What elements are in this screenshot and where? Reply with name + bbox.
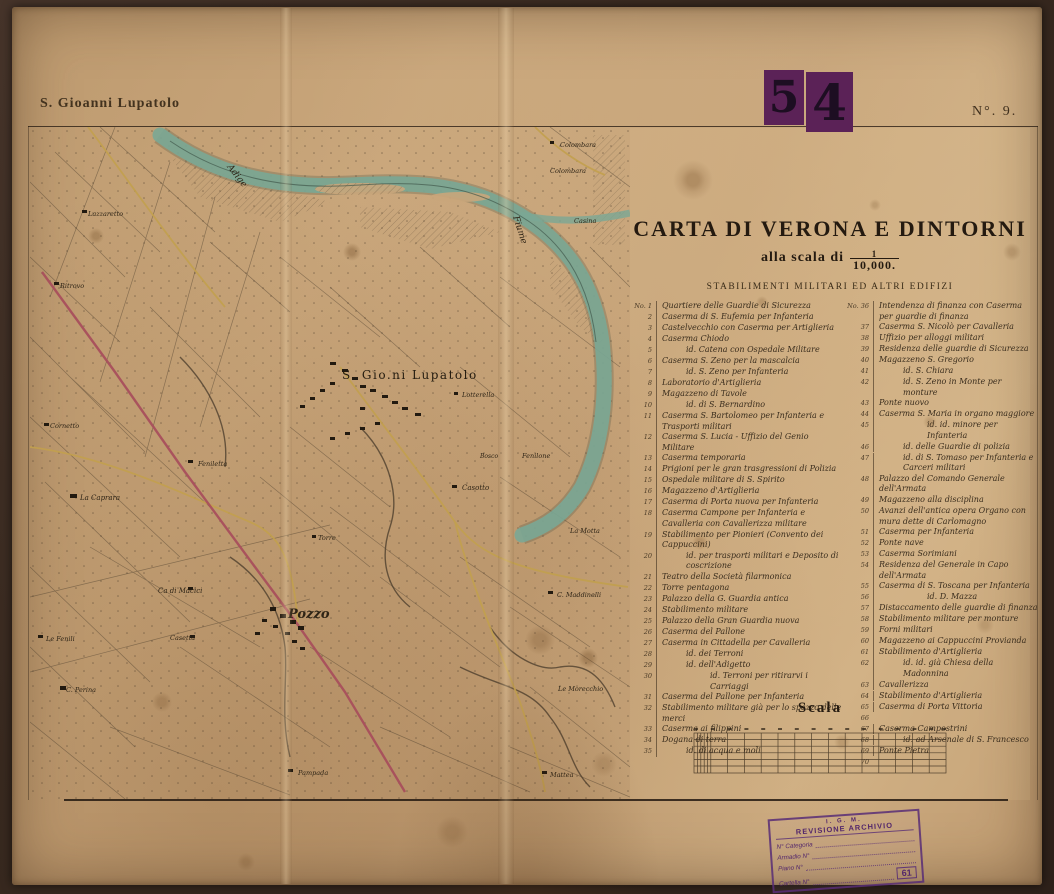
legend-entry-number: 16 (628, 486, 656, 497)
legend-entry-text: Palazzo del Comando Generale dell'Armata (873, 474, 1038, 495)
legend-entry-text: id. per trasporti militari e Deposito di… (656, 551, 842, 572)
legend-entry-number: 4 (628, 334, 656, 345)
legend-entry: 7 id. S. Zeno per Infanteria (628, 367, 842, 378)
legend-entry: 26 Caserma del Pallone (628, 627, 842, 638)
legend-entry-number: 39 (845, 344, 873, 355)
map-label: Bosco (479, 453, 498, 460)
scale-numerator: 1 (850, 250, 899, 258)
legend-entry-text: id. S. Chiara (873, 366, 1038, 377)
legend-entry-number: 43 (845, 398, 873, 409)
map-label: S. Gio.ni Lupatolo (342, 368, 478, 382)
legend-entry-number: 27 (628, 638, 656, 649)
legend-entry-text: Caserma S. Bartolomeo per Infanteria e T… (656, 411, 842, 432)
legend-entry-number: 51 (845, 527, 873, 538)
map-area: AdigeFiumeColombaraColombaraCasinaS. Gio… (30, 127, 630, 799)
legend-entry-text: id. dei Terroni (656, 649, 842, 660)
legend-entry-text: Stabilimento per Pionieri (Convento dei … (656, 530, 842, 551)
legend-entry-number: 18 (628, 508, 656, 519)
legend-entry-number: 62 (845, 658, 873, 669)
map-label: C. Maddinelli (557, 591, 601, 599)
legend-entry-text: Laboratorio d'Artiglieria (656, 378, 842, 389)
legend-entry: 24 Stabilimento militare (628, 605, 842, 616)
scale-prefix: alla scala di (761, 250, 844, 265)
map-label: Feniletta (197, 460, 227, 468)
legend-entry-number: 3 (628, 323, 656, 334)
legend-entry-text: Caserma S. Maria in organo maggiore (873, 409, 1038, 420)
legend-entry-number: 46 (845, 442, 873, 453)
legend-entry: 59 Forni militari (845, 625, 1038, 636)
map-label: C. Perina (66, 686, 96, 694)
legend-entry-text: Avanzi dell'antica opera Organo con mura… (873, 506, 1038, 527)
scale-statement: alla scala di110,000. (630, 250, 1030, 272)
legend-entry-text: Magazzeno ai Cappuccini Provianda (873, 636, 1038, 647)
legend-entry-text: Cavallerizza (873, 680, 1038, 691)
legend-entry-number: 61 (845, 647, 873, 658)
title-block: CARTA DI VERONA E DINTORNI alla scala di… (630, 216, 1030, 292)
legend-entry-text: Stabilimento militare (656, 605, 842, 616)
stamp-archive-number: 61 (896, 866, 917, 879)
legend-entry-number: 29 (628, 660, 656, 671)
legend-entry-text: Caserma Campone per Infanteria e Cavalle… (656, 508, 842, 529)
legend-entry: 20 id. per trasporti militari e Deposito… (628, 551, 842, 572)
map-label: Torre (318, 534, 336, 542)
legend-entry-text: id. di S. Tomaso per Infanteria e Carcer… (873, 453, 1038, 474)
map-label: Casetta (170, 634, 195, 642)
legend-entry: 44 Caserma S. Maria in organo maggiore (845, 409, 1038, 420)
legend-entry: 3 Castelvecchio con Caserma per Artiglie… (628, 323, 842, 334)
legend-entry-text: Magazzeno d'Artiglieria (656, 486, 842, 497)
legend-entry: 53 Caserma Sorimiani (845, 549, 1038, 560)
legend-entry: 50 Avanzi dell'antica opera Organo con m… (845, 506, 1038, 527)
legend-entry-number: 56 (845, 592, 873, 603)
legend-entry: 9 Magazzeno di Tavole (628, 389, 842, 400)
legend-entry-number: 48 (845, 474, 873, 485)
scale-bar-block: Scala (630, 700, 1010, 782)
legend-entry: 28 id. dei Terroni (628, 649, 842, 660)
stamp-digit-5: 5 (764, 70, 804, 125)
map-label: La Motta (569, 527, 600, 535)
scale-bar-label: Scala (630, 700, 1010, 717)
legend-entry: 37 Caserma S. Nicolò per Cavalleria (845, 322, 1038, 333)
legend-entry-text: id. delle Guardie di polizia (873, 442, 1038, 453)
sheet-inner-frame-left (28, 126, 29, 800)
legend-entry-text: id. S. Zeno in Monte per monture (873, 377, 1038, 398)
legend-entry-number: 17 (628, 497, 656, 508)
legend-entry: 15 Ospedale militare di S. Spirito (628, 475, 842, 486)
map-label: Fenilone (521, 452, 550, 460)
legend-entry-number: 26 (628, 627, 656, 638)
legend-entry: 25 Palazzo della Gran Guardia nuova (628, 616, 842, 627)
legend-entry-number: 9 (628, 389, 656, 400)
legend-entry-number: No. 36 (845, 301, 873, 312)
legend-entry-number: 25 (628, 616, 656, 627)
legend-entry: 6 Caserma S. Zeno per la mascalcia (628, 356, 842, 367)
sheet-index-stamp: 5 4 (764, 70, 853, 130)
legend-entry-number: 57 (845, 603, 873, 614)
legend-entry: 18 Caserma Campone per Infanteria e Cava… (628, 508, 842, 529)
legend-entry: 39 Residenza delle guardie di Sicurezza (845, 344, 1038, 355)
legend-entry-number: 22 (628, 583, 656, 594)
legend-entry: 14 Prigioni per le gran trasgressioni di… (628, 464, 842, 475)
legend-entry-number: 14 (628, 464, 656, 475)
legend-entry-number: 42 (845, 377, 873, 388)
map-svg: AdigeFiumeColombaraColombaraCasinaS. Gio… (30, 127, 630, 799)
scale-denominator: 10,000. (850, 258, 899, 272)
map-label: Casotto (462, 484, 489, 492)
legend-entry-number: 8 (628, 378, 656, 389)
legend-entry-text: id. Terroni per ritirarvi i Carriaggi (656, 671, 842, 692)
stamp-field-label: N° Categoria (776, 841, 813, 851)
legend-entry: 10 id. di S. Bernardino (628, 400, 842, 411)
legend-entry-number: 11 (628, 411, 656, 422)
legend-entry-number: 7 (628, 367, 656, 378)
legend-entry-text: Residenza delle guardie di Sicurezza (873, 344, 1038, 355)
legend-entry: 47 id. di S. Tomaso per Infanteria e Car… (845, 453, 1038, 474)
legend-entry-text: Residenza del Generale in Capo dell'Arma… (873, 560, 1038, 581)
legend-entry: 58 Stabilimento militare per monture (845, 614, 1038, 625)
legend-entry-text: id. id. già Chiesa della Madonnina (873, 658, 1038, 679)
archive-stamp: I. G. M. REVISIONE ARCHIVIO N° Categoria… (768, 809, 925, 893)
map-label: Ca di Macici (158, 587, 202, 595)
legend-entry: 30 id. Terroni per ritirarvi i Carriaggi (628, 671, 842, 692)
legend-entry-number: 45 (845, 420, 873, 431)
legend-entry-number: 5 (628, 345, 656, 356)
legend-entry-number: 37 (845, 322, 873, 333)
legend-entry-number: 55 (845, 581, 873, 592)
legend-entry: 4 Caserma Chiodo (628, 334, 842, 345)
legend-entry-text: Caserma per Infanteria (873, 527, 1038, 538)
legend-column-right: No. 36 Intendenza di finanza con Caserma… (845, 301, 1038, 768)
legend-entry-text: Teatro della Società filarmonica (656, 572, 842, 583)
legend-entry: 16 Magazzeno d'Artiglieria (628, 486, 842, 497)
legend-entry-number: 6 (628, 356, 656, 367)
legend-entry: 17 Caserma di Porta nuova per Infanteria (628, 497, 842, 508)
stamp-field-label: Armadio N° (777, 853, 810, 862)
legend-entry-text: Caserma S. Zeno per la mascalcia (656, 356, 842, 367)
legend-entry-text: Caserma di S. Eufemia per Infanteria (656, 312, 842, 323)
legend-entry-number: 10 (628, 400, 656, 411)
legend-entry: 42 id. S. Zeno in Monte per monture (845, 377, 1038, 398)
legend-entry-number: 24 (628, 605, 656, 616)
legend-entry-text: Quartiere delle Guardie di Sicurezza (656, 301, 842, 312)
legend-entry-number: 13 (628, 453, 656, 464)
legend-entry-number: 60 (845, 636, 873, 647)
legend-entry-text: id. id. minore per Infanteria (873, 420, 1038, 441)
legend-entry: 5 id. Catena con Ospedale Militare (628, 345, 842, 356)
map-label: Colombara (550, 167, 586, 175)
stamp-field-line (812, 872, 894, 886)
legend-entry: 51 Caserma per Infanteria (845, 527, 1038, 538)
legend-entry-number: 23 (628, 594, 656, 605)
legend-entry: 41 id. S. Chiara (845, 366, 1038, 377)
legend-entry: 11 Caserma S. Bartolomeo per Infanteria … (628, 411, 842, 432)
legend-entry: 55 Caserma di S. Toscana per Infanteria (845, 581, 1038, 592)
scale-bar-grid (686, 721, 954, 777)
legend-entry-text: Prigioni per le gran trasgressioni di Po… (656, 464, 842, 475)
legend-entry: 22 Torre pentagona (628, 583, 842, 594)
legend-entry-text: Caserma di S. Toscana per Infanteria (873, 581, 1038, 592)
sheet-number-annotation: N°. 9. (972, 104, 1017, 120)
legend-entry-text: Palazzo della Gran Guardia nuova (656, 616, 842, 627)
sheet-inner-frame-bottom (64, 799, 1008, 801)
legend-entry: 13 Caserma temporaria (628, 453, 842, 464)
map-label: Lotterella (461, 391, 494, 399)
legend-entry-number: 20 (628, 551, 656, 562)
map-label: Cornetto (50, 422, 79, 430)
legend-entry-number: 15 (628, 475, 656, 486)
map-label: Pampada (297, 769, 328, 777)
legend-entry: 19 Stabilimento per Pionieri (Convento d… (628, 530, 842, 551)
legend-entry-text: Uffizio per alloggi militari (873, 333, 1038, 344)
map-title: CARTA DI VERONA E DINTORNI (630, 216, 1030, 242)
stamp-field-label: Piano N° (778, 864, 803, 873)
map-label: Le Morecchio (557, 685, 603, 693)
map-label: Mattea (549, 771, 574, 779)
legend-entry: 27 Caserma in Cittadella per Cavalleria (628, 638, 842, 649)
legend-entry-text: Ponte nuovo (873, 398, 1038, 409)
legend-entry: 21 Teatro della Società filarmonica (628, 572, 842, 583)
map-label: Casina (574, 217, 596, 225)
legend-entry-number: 21 (628, 572, 656, 583)
legend-entry-text: Stabilimento d'Artiglieria (873, 647, 1038, 658)
map-label: Ritrovo (59, 282, 84, 290)
legend-entry-text: Palazzo della G. Guardia antica (656, 594, 842, 605)
legend-entry-number: 30 (628, 671, 656, 682)
legend-entry: No. 1 Quartiere delle Guardie di Sicurez… (628, 301, 842, 312)
legend-entry-text: Castelvecchio con Caserma per Artiglieri… (656, 323, 842, 334)
legend-entry: 8 Laboratorio d'Artiglieria (628, 378, 842, 389)
legend-entry: 40 Magazzeno S. Gregorio (845, 355, 1038, 366)
legend-entry: 23 Palazzo della G. Guardia antica (628, 594, 842, 605)
legend-entry-text: Caserma di Porta nuova per Infanteria (656, 497, 842, 508)
legend-entry: 46 id. delle Guardie di polizia (845, 442, 1038, 453)
legend-entry-number: 50 (845, 506, 873, 517)
legend-entry-text: Ospedale militare di S. Spirito (656, 475, 842, 486)
legend-entry: No. 36 Intendenza di finanza con Caserma… (845, 301, 1038, 322)
legend-entry: 45 id. id. minore per Infanteria (845, 420, 1038, 441)
legend-entry: 54 Residenza del Generale in Capo dell'A… (845, 560, 1038, 581)
legend-entry: 62 id. id. già Chiesa della Madonnina (845, 658, 1038, 679)
legend-entry: 2 Caserma di S. Eufemia per Infanteria (628, 312, 842, 323)
legend-entry-text: id. D. Mazza (873, 592, 1038, 603)
legend-entry: 48 Palazzo del Comando Generale dell'Arm… (845, 474, 1038, 495)
legend-entry-text: id. Catena con Ospedale Militare (656, 345, 842, 356)
legend-entry-text: Magazzeno alla disciplina (873, 495, 1038, 506)
legend-entry-number: 49 (845, 495, 873, 506)
legend-column-left: No. 1 Quartiere delle Guardie di Sicurez… (628, 301, 842, 757)
legend-entry-number: 12 (628, 432, 656, 443)
map-label: Le Fenili (45, 635, 75, 643)
legend-entry: 61 Stabilimento d'Artiglieria (845, 647, 1038, 658)
legend-entry-number: 40 (845, 355, 873, 366)
legend-entry-text: Distaccamento delle guardie di finanza (873, 603, 1038, 614)
legend-entry-text: Caserma Chiodo (656, 334, 842, 345)
legend-entry-text: Caserma Sorimiani (873, 549, 1038, 560)
legend-entry: 52 Ponte nave (845, 538, 1038, 549)
legend-entry-text: Torre pentagona (656, 583, 842, 594)
legend-entry-text: Caserma del Pallone (656, 627, 842, 638)
legend-entry-text: Magazzeno S. Gregorio (873, 355, 1038, 366)
margin-place-title: S. Gioanni Lupatolo (40, 96, 180, 112)
legend-entry: 60 Magazzeno ai Cappuccini Provianda (845, 636, 1038, 647)
map-label: Pozzo (287, 607, 330, 622)
legend-entry-text: Forni militari (873, 625, 1038, 636)
legend-entry: 29 id. dell'Adigetto (628, 660, 842, 671)
legend-entry: 56 id. D. Mazza (845, 592, 1038, 603)
map-label: La Caprara (79, 494, 120, 502)
legend-entry-number: 47 (845, 453, 873, 464)
scale-fraction: 110,000. (850, 250, 899, 272)
woods-hatch (593, 135, 625, 245)
legend-entry-text: Ponte nave (873, 538, 1038, 549)
legend-entry-text: id. di S. Bernardino (656, 400, 842, 411)
legend-entry-number: 19 (628, 530, 656, 541)
legend-entry-number: 58 (845, 614, 873, 625)
legend-entry-number: 38 (845, 333, 873, 344)
legend-entry-text: Intendenza di finanza con Caserma per gu… (873, 301, 1038, 322)
legend-entry-text: Stabilimento militare per monture (873, 614, 1038, 625)
legend-entry-number: 28 (628, 649, 656, 660)
stamp-digit-4: 4 (806, 72, 853, 132)
legend-entry-text: id. dell'Adigetto (656, 660, 842, 671)
legend-entry-text: Caserma S. Lucia - Uffizio del Genio Mil… (656, 432, 842, 453)
legend-entry-text: Caserma temporaria (656, 453, 842, 464)
legend-entry-number: 54 (845, 560, 873, 571)
legend-entry: 38 Uffizio per alloggi militari (845, 333, 1038, 344)
legend-entry-text: id. S. Zeno per Infanteria (656, 367, 842, 378)
legend-entry: 49 Magazzeno alla disciplina (845, 495, 1038, 506)
legend-entry-number: 41 (845, 366, 873, 377)
legend-entry: 63 Cavallerizza (845, 680, 1038, 691)
legend-subtitle: STABILIMENTI MILITARI ED ALTRI EDIFIZI (630, 282, 1030, 292)
legend-entry: 12 Caserma S. Lucia - Uffizio del Genio … (628, 432, 842, 453)
map-label: Lazzaretto (87, 210, 123, 218)
legend-entry-number: 53 (845, 549, 873, 560)
legend-entry-number: 59 (845, 625, 873, 636)
stamp-field-label: Cartella N° (779, 879, 810, 888)
legend-entry-number: 2 (628, 312, 656, 323)
legend-entry: 43 Ponte nuovo (845, 398, 1038, 409)
legend-entry-number: 52 (845, 538, 873, 549)
legend-entry-number: No. 1 (628, 301, 656, 312)
legend-entry: 57 Distaccamento delle guardie di finanz… (845, 603, 1038, 614)
legend-entry-number: 44 (845, 409, 873, 420)
legend-entry-text: Caserma in Cittadella per Cavalleria (656, 638, 842, 649)
map-label: Colombara (560, 141, 596, 149)
legend-entry-number: 63 (845, 680, 873, 691)
legend-entry-text: Magazzeno di Tavole (656, 389, 842, 400)
legend-entry-text: Caserma S. Nicolò per Cavalleria (873, 322, 1038, 333)
